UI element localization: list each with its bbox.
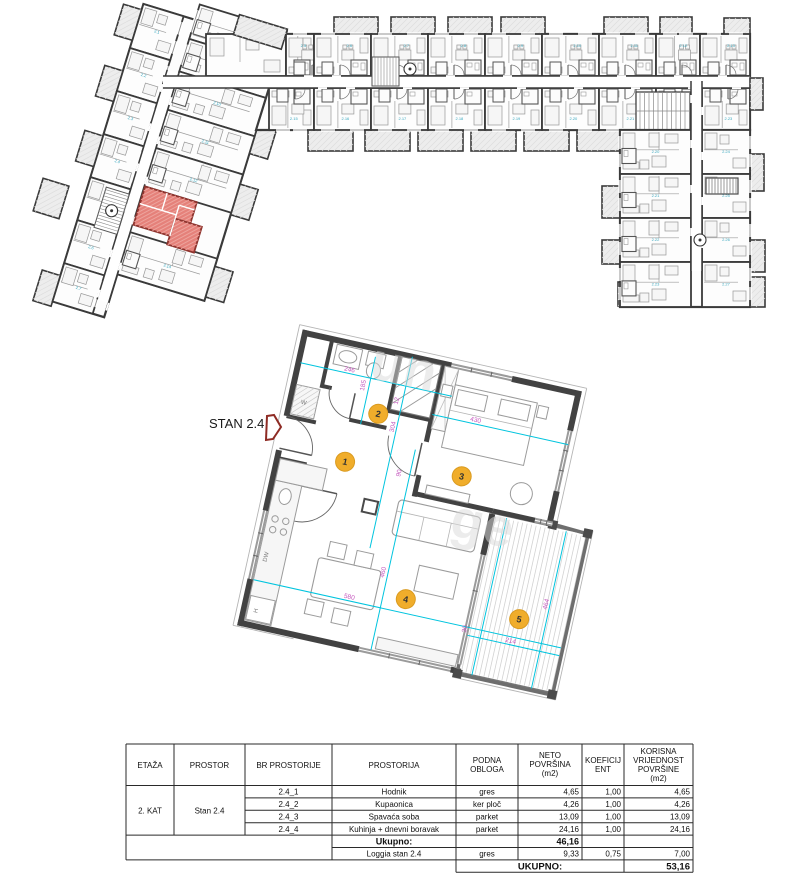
svg-text:2.10: 2.10 — [573, 43, 582, 48]
svg-text:2.26: 2.26 — [722, 237, 731, 242]
svg-text:2.22: 2.22 — [652, 237, 661, 242]
svg-text:Kuhinja + dnevni boravak: Kuhinja + dnevni boravak — [349, 825, 440, 834]
svg-text:13,09: 13,09 — [670, 813, 691, 822]
svg-text:Spavaća soba: Spavaća soba — [369, 813, 420, 822]
svg-text:gres: gres — [479, 788, 495, 797]
svg-text:PROSTOR: PROSTOR — [190, 761, 230, 770]
svg-text:2.23: 2.23 — [725, 116, 734, 121]
svg-text:ker ploč: ker ploč — [473, 800, 501, 809]
svg-text:2.15: 2.15 — [290, 116, 299, 121]
svg-text:PODNA: PODNA — [473, 756, 502, 765]
svg-text:ETAŽA: ETAŽA — [137, 761, 163, 770]
svg-text:2.16: 2.16 — [342, 116, 351, 121]
svg-text:2.24: 2.24 — [722, 149, 731, 154]
svg-text:OBLOGA: OBLOGA — [470, 765, 504, 774]
svg-text:UKUPNO:: UKUPNO: — [518, 861, 562, 872]
svg-text:parket: parket — [476, 813, 499, 822]
svg-text:2.20: 2.20 — [570, 116, 579, 121]
svg-text:2.18: 2.18 — [456, 116, 465, 121]
svg-text:POVRŠINE: POVRŠINE — [638, 765, 679, 774]
svg-text:1,00: 1,00 — [605, 800, 621, 809]
svg-text:2.13: 2.13 — [727, 43, 736, 48]
svg-text:2.4_1: 2.4_1 — [278, 788, 299, 797]
svg-text:4,26: 4,26 — [563, 800, 579, 809]
svg-text:2.9: 2.9 — [518, 43, 524, 48]
svg-text:2.4_4: 2.4_4 — [278, 825, 299, 834]
svg-text:53,16: 53,16 — [666, 861, 690, 872]
svg-text:BR PROSTORIJE: BR PROSTORIJE — [256, 761, 320, 770]
svg-text:ENT: ENT — [595, 765, 611, 774]
svg-text:1,00: 1,00 — [605, 825, 621, 834]
svg-text:2.27: 2.27 — [722, 282, 731, 287]
svg-text:(m2): (m2) — [542, 769, 559, 778]
svg-text:Stan 2.4: Stan 2.4 — [195, 806, 225, 815]
svg-text:STAN 2.4: STAN 2.4 — [209, 416, 264, 431]
svg-text:2. KAT: 2. KAT — [138, 806, 162, 815]
svg-text:2.23: 2.23 — [652, 282, 661, 287]
svg-text:24,16: 24,16 — [559, 825, 580, 834]
svg-text:0,75: 0,75 — [605, 850, 621, 859]
svg-text:(m2): (m2) — [650, 774, 667, 783]
svg-text:2.20: 2.20 — [652, 149, 661, 154]
svg-text:24,16: 24,16 — [670, 825, 691, 834]
svg-text:2.6: 2.6 — [347, 43, 353, 48]
svg-text:ge: ge — [446, 488, 520, 560]
svg-text:NETO: NETO — [539, 751, 561, 760]
svg-text:9,33: 9,33 — [563, 850, 579, 859]
svg-text:2.11: 2.11 — [631, 43, 639, 48]
svg-text:PROSTORIJA: PROSTORIJA — [369, 761, 421, 770]
svg-text:VRIJEDNOST: VRIJEDNOST — [633, 756, 684, 765]
svg-text:2.19: 2.19 — [513, 116, 522, 121]
svg-text:2.4_3: 2.4_3 — [278, 813, 299, 822]
svg-text:Kupaonica: Kupaonica — [375, 800, 413, 809]
svg-text:Ukupno:: Ukupno: — [376, 837, 413, 847]
svg-text:2.21: 2.21 — [627, 116, 636, 121]
svg-text:46,16: 46,16 — [556, 837, 579, 847]
svg-text:4,26: 4,26 — [674, 800, 690, 809]
svg-text:Hodnik: Hodnik — [382, 788, 408, 797]
svg-text:2.12: 2.12 — [679, 43, 688, 48]
svg-text:KORISNA: KORISNA — [640, 747, 677, 756]
svg-text:2.5: 2.5 — [301, 43, 307, 48]
svg-text:KOEFICIJ: KOEFICIJ — [585, 756, 621, 765]
svg-text:gres: gres — [479, 850, 495, 859]
svg-text:parket: parket — [476, 825, 499, 834]
svg-text:2.21: 2.21 — [652, 193, 661, 198]
svg-text:7,00: 7,00 — [674, 850, 690, 859]
svg-text:2.4_2: 2.4_2 — [278, 800, 299, 809]
svg-text:1,00: 1,00 — [605, 788, 621, 797]
svg-text:4,65: 4,65 — [563, 788, 579, 797]
svg-text:2.8: 2.8 — [461, 43, 467, 48]
svg-text:1,00: 1,00 — [605, 813, 621, 822]
svg-text:2.7: 2.7 — [404, 43, 410, 48]
svg-text:Loggia stan 2.4: Loggia stan 2.4 — [367, 850, 422, 859]
svg-text:POVRŠINA: POVRŠINA — [529, 760, 571, 769]
svg-text:2.17: 2.17 — [399, 116, 408, 121]
svg-text:4,65: 4,65 — [674, 788, 690, 797]
svg-text:13,09: 13,09 — [559, 813, 580, 822]
